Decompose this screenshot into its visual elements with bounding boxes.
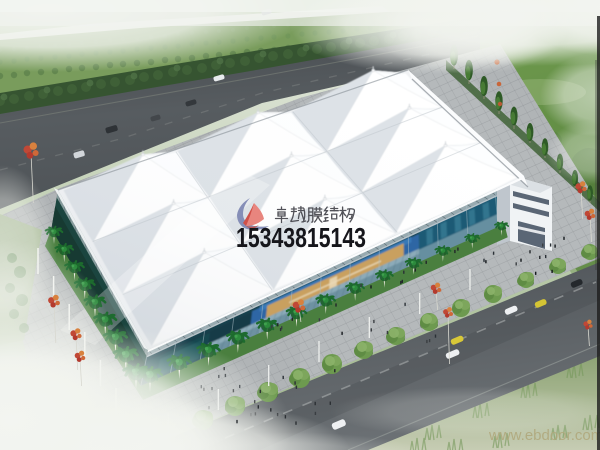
svg-text:www.ebdoor.com: www.ebdoor.com [488,427,600,444]
svg-text:15343815143: 15343815143 [236,222,366,253]
